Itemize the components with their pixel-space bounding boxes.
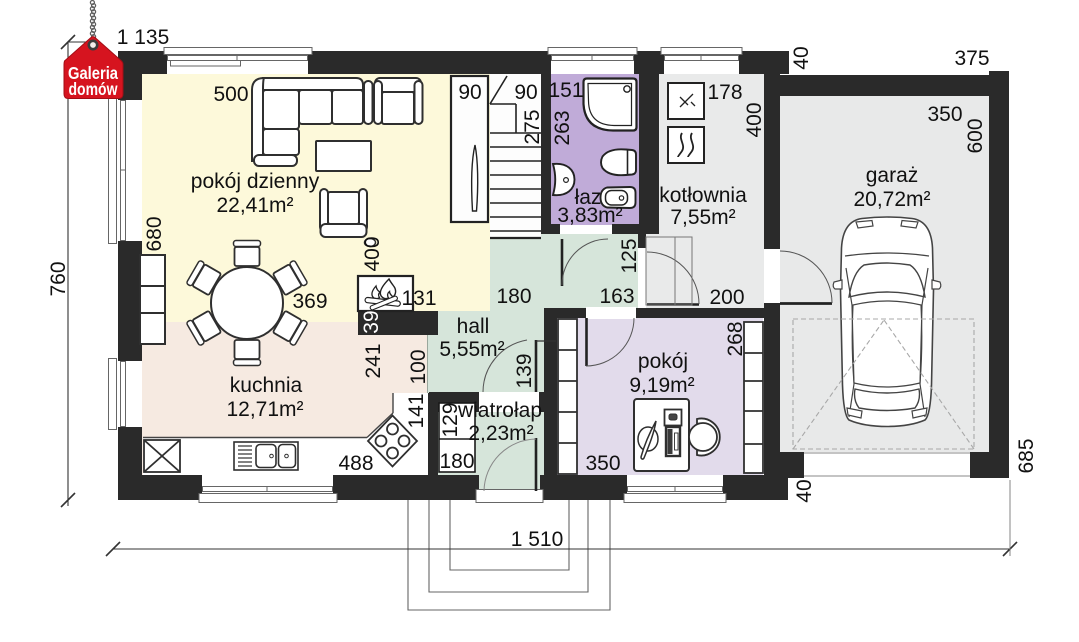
svg-text:488: 488 [338, 452, 373, 475]
svg-text:5,55m²: 5,55m² [439, 338, 504, 361]
svg-text:22,41m²: 22,41m² [216, 194, 293, 217]
svg-text:2,23m²: 2,23m² [468, 422, 533, 445]
svg-text:7,55m²: 7,55m² [670, 206, 735, 229]
svg-text:garaż: garaż [866, 164, 919, 187]
svg-text:241: 241 [362, 343, 385, 378]
svg-text:141: 141 [405, 393, 428, 428]
svg-text:685: 685 [1015, 438, 1038, 473]
svg-text:40: 40 [793, 479, 816, 502]
svg-text:500: 500 [213, 83, 248, 106]
svg-text:400: 400 [361, 236, 384, 271]
svg-text:180: 180 [496, 285, 531, 308]
svg-text:268: 268 [724, 321, 747, 356]
svg-text:domów: domów [69, 79, 118, 99]
svg-text:263: 263 [551, 110, 574, 145]
svg-text:kuchnia: kuchnia [230, 374, 303, 397]
svg-text:760: 760 [47, 261, 70, 296]
svg-text:680: 680 [143, 216, 166, 251]
svg-text:9,19m²: 9,19m² [629, 374, 694, 397]
svg-text:3,83m²: 3,83m² [557, 204, 622, 227]
svg-text:125: 125 [618, 238, 641, 273]
svg-text:wiatrołap: wiatrołap [457, 399, 542, 422]
svg-text:40: 40 [790, 46, 813, 69]
svg-text:90: 90 [458, 81, 481, 104]
svg-text:1 135: 1 135 [117, 26, 170, 49]
svg-text:hall: hall [457, 315, 490, 338]
svg-text:pokój dzienny: pokój dzienny [191, 170, 320, 193]
svg-text:39: 39 [360, 310, 383, 333]
svg-text:163: 163 [599, 285, 634, 308]
svg-text:90: 90 [514, 81, 537, 104]
svg-text:129: 129 [439, 402, 462, 437]
svg-text:20,72m²: 20,72m² [853, 188, 930, 211]
svg-text:600: 600 [964, 118, 987, 153]
svg-text:200: 200 [709, 286, 744, 309]
svg-text:275: 275 [521, 109, 544, 144]
svg-text:1 510: 1 510 [511, 528, 564, 551]
svg-text:400: 400 [743, 102, 766, 137]
svg-text:375: 375 [954, 47, 989, 70]
svg-text:350: 350 [585, 452, 620, 475]
svg-text:180: 180 [439, 450, 474, 473]
svg-text:131: 131 [401, 287, 436, 310]
svg-text:350: 350 [927, 103, 962, 126]
svg-text:139: 139 [513, 353, 536, 388]
svg-text:kotłownia: kotłownia [659, 184, 747, 207]
svg-text:pokój: pokój [638, 350, 688, 373]
svg-text:369: 369 [292, 290, 327, 313]
svg-text:151: 151 [548, 79, 583, 102]
svg-text:100: 100 [407, 349, 430, 384]
svg-text:178: 178 [707, 81, 742, 104]
svg-text:12,71m²: 12,71m² [226, 398, 303, 421]
